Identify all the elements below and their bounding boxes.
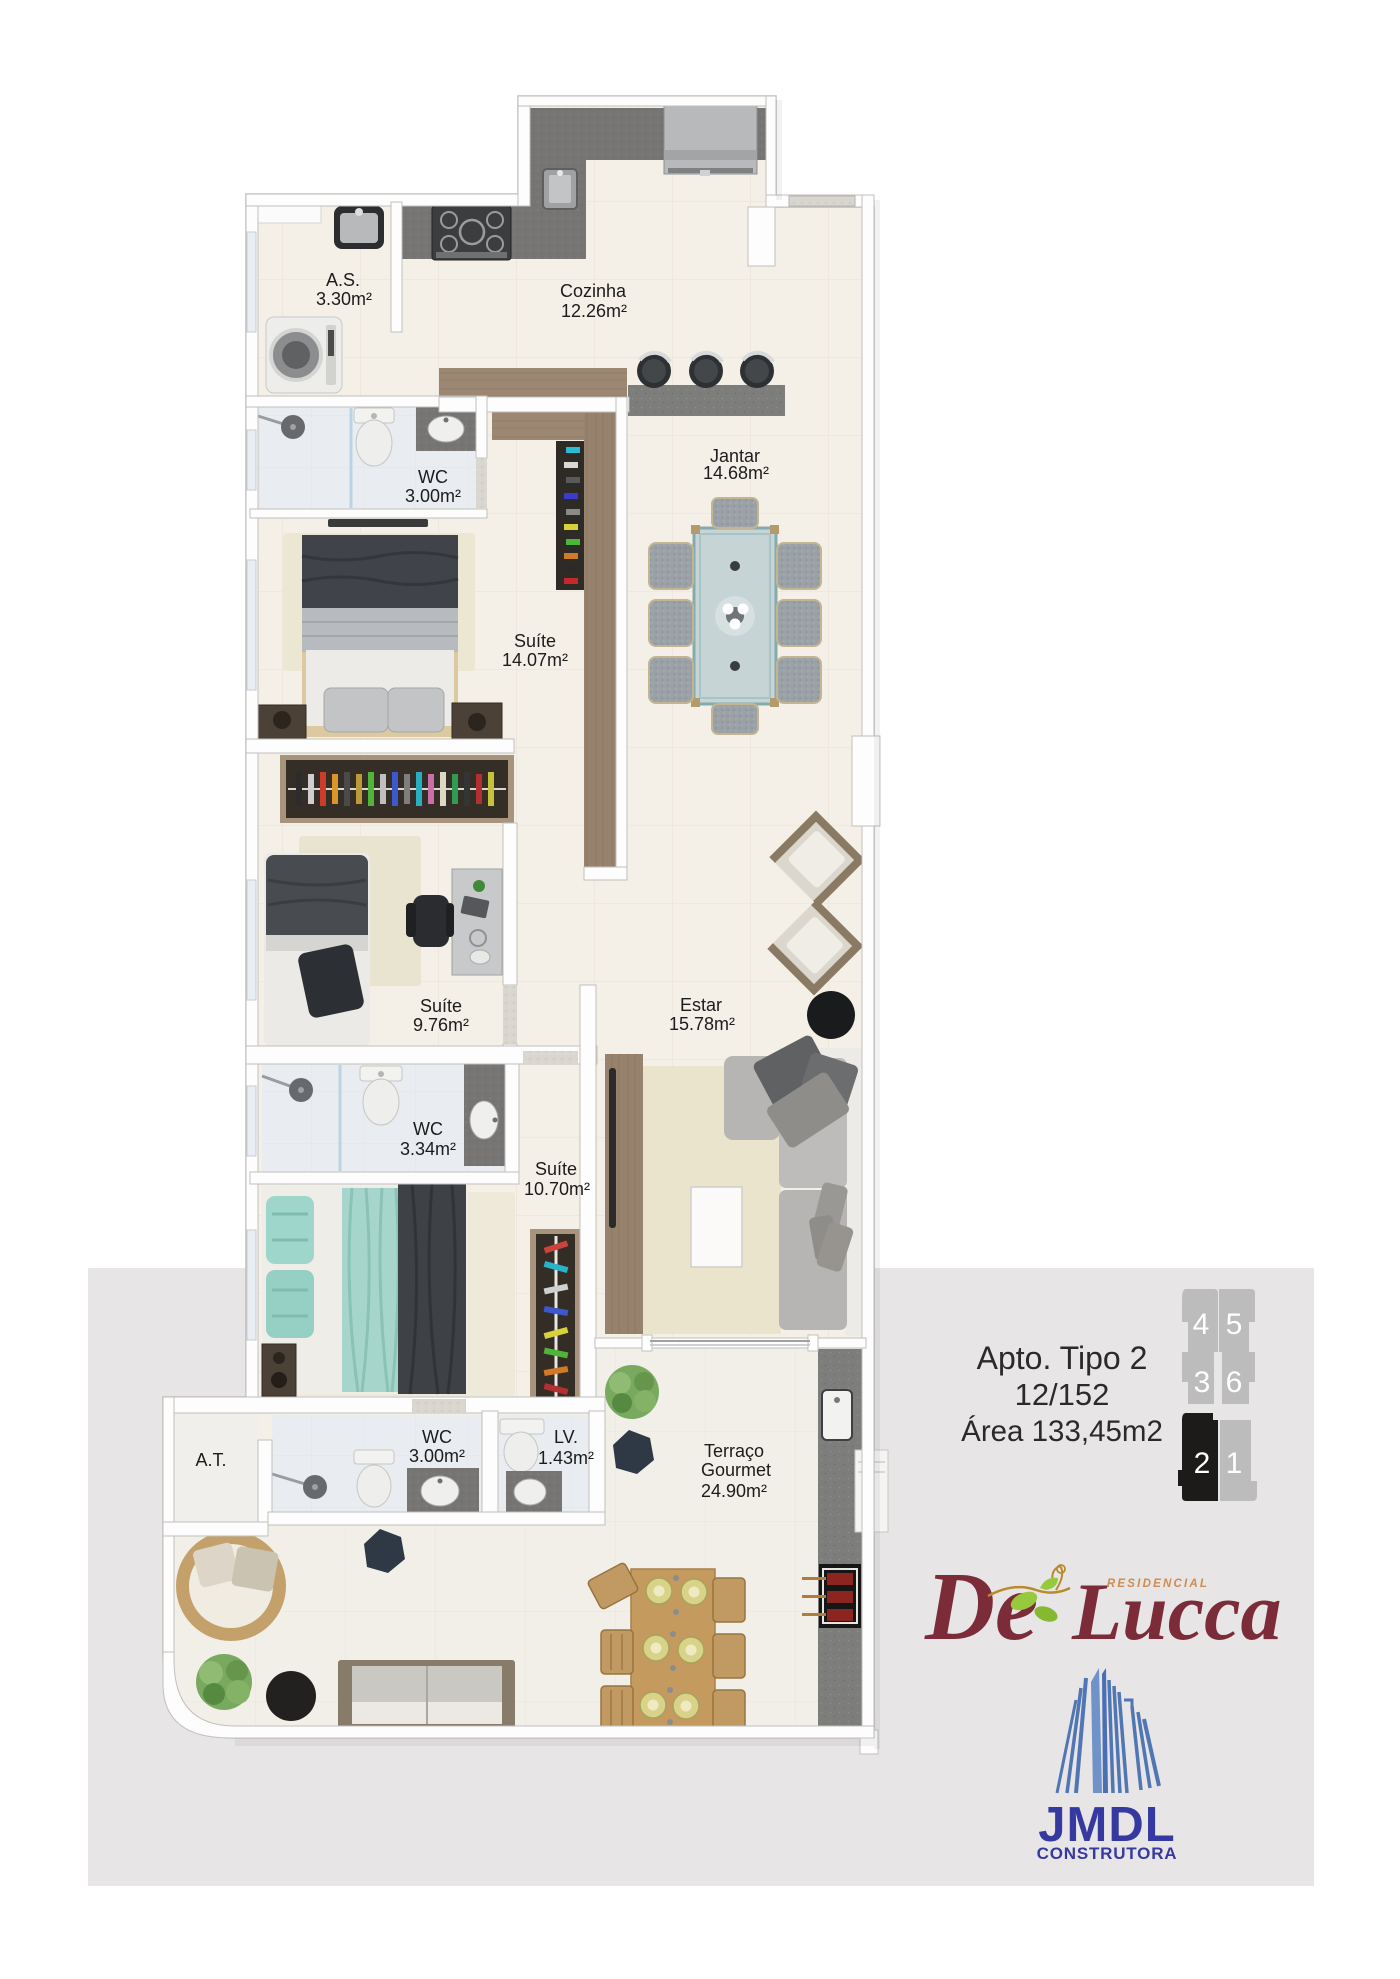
svg-text:A.T.: A.T. (195, 1450, 226, 1470)
svg-text:12/152: 12/152 (1015, 1377, 1110, 1412)
svg-text:6: 6 (1226, 1366, 1243, 1399)
svg-text:Suíte: Suíte (420, 996, 462, 1016)
svg-text:24.90m²: 24.90m² (701, 1481, 767, 1501)
svg-text:Cozinha: Cozinha (560, 281, 627, 301)
svg-text:1.43m²: 1.43m² (538, 1448, 594, 1468)
svg-text:5: 5 (1226, 1308, 1243, 1341)
svg-text:4: 4 (1193, 1308, 1210, 1341)
svg-text:12.26m²: 12.26m² (561, 301, 627, 321)
svg-text:10.70m²: 10.70m² (524, 1179, 590, 1199)
svg-text:Lucca: Lucca (1071, 1566, 1281, 1657)
svg-text:1: 1 (1226, 1447, 1243, 1480)
svg-text:2: 2 (1194, 1447, 1211, 1480)
svg-text:Apto. Tipo 2: Apto. Tipo 2 (977, 1340, 1148, 1376)
svg-text:Estar: Estar (680, 995, 722, 1015)
svg-text:Suíte: Suíte (535, 1159, 577, 1179)
svg-text:14.68m²: 14.68m² (703, 463, 769, 483)
svg-text:WC: WC (413, 1119, 443, 1139)
svg-text:A.S.: A.S. (326, 270, 360, 290)
svg-text:WC: WC (422, 1427, 452, 1447)
svg-text:WC: WC (418, 467, 448, 487)
svg-text:3.00m²: 3.00m² (409, 1446, 465, 1466)
svg-text:3.34m²: 3.34m² (400, 1139, 456, 1159)
svg-text:Gourmet: Gourmet (701, 1460, 771, 1480)
svg-text:Terraço: Terraço (704, 1441, 764, 1461)
svg-text:3: 3 (1194, 1366, 1211, 1399)
svg-text:LV.: LV. (554, 1427, 578, 1447)
svg-text:15.78m²: 15.78m² (669, 1014, 735, 1034)
svg-text:3.00m²: 3.00m² (405, 486, 461, 506)
svg-text:Suíte: Suíte (514, 631, 556, 651)
svg-text:14.07m²: 14.07m² (502, 650, 568, 670)
svg-text:CONSTRUTORA: CONSTRUTORA (1037, 1844, 1178, 1863)
svg-text:3.30m²: 3.30m² (316, 289, 372, 309)
svg-text:9.76m²: 9.76m² (413, 1015, 469, 1035)
svg-text:Área 133,45m2: Área 133,45m2 (961, 1415, 1163, 1448)
